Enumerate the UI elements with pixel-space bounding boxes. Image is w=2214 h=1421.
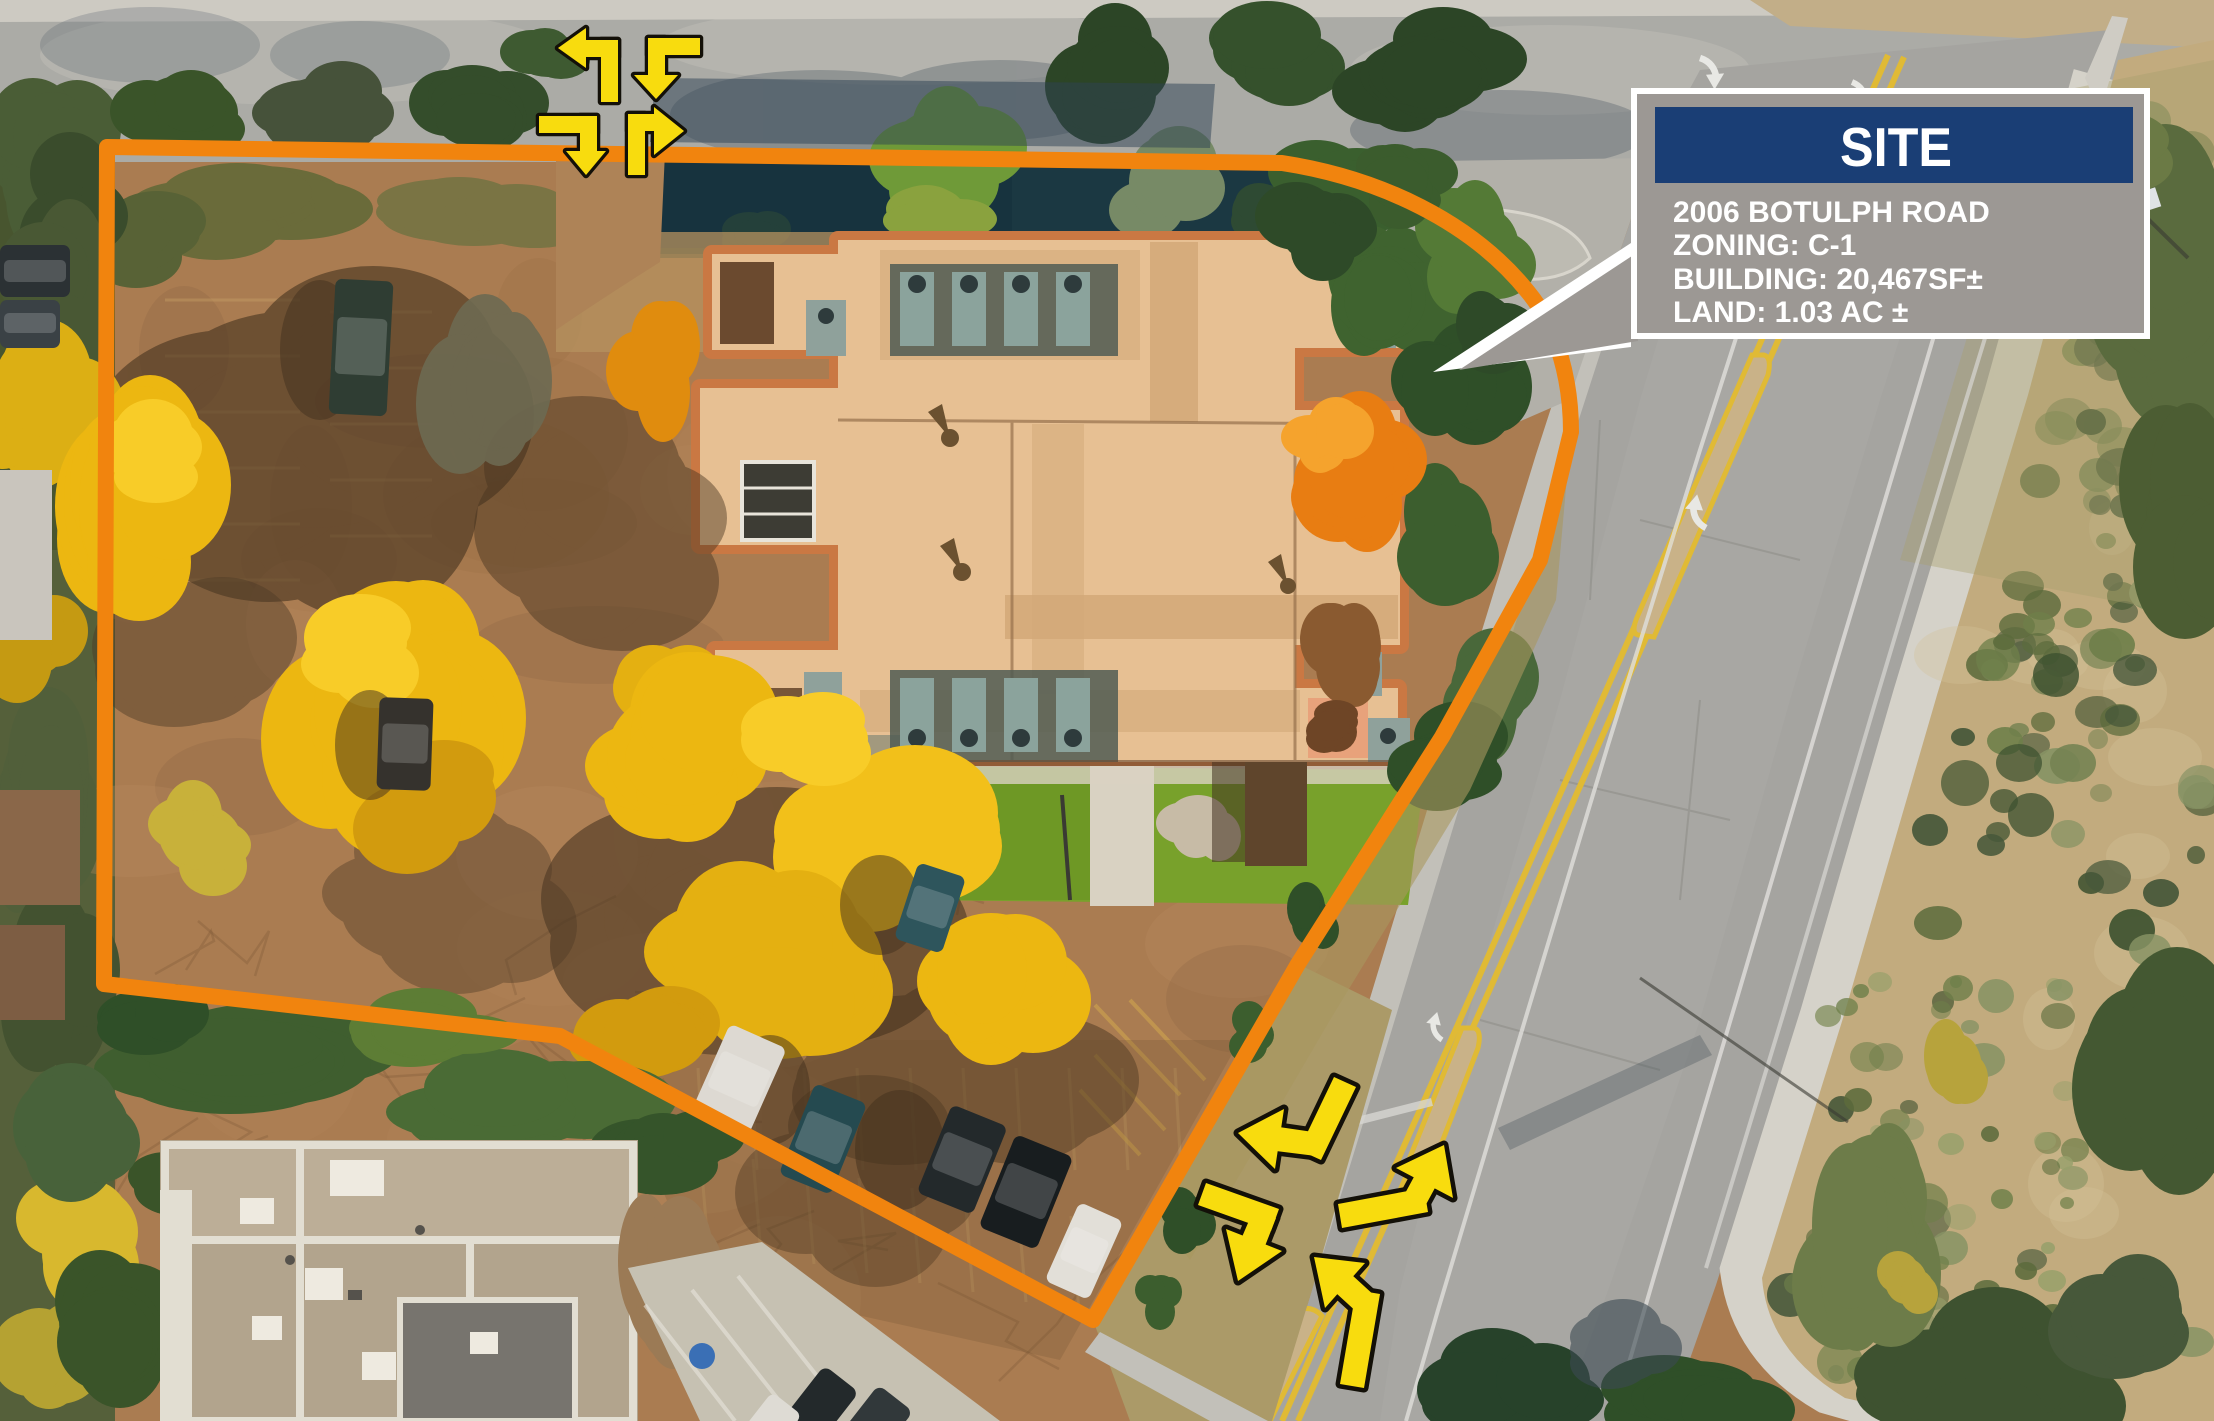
svg-text:LAND: 1.03 AC ±: LAND: 1.03 AC ± xyxy=(1673,296,1908,329)
svg-text:ZONING: C-1: ZONING: C-1 xyxy=(1673,229,1856,262)
svg-text:2006 BOTULPH ROAD: 2006 BOTULPH ROAD xyxy=(1673,196,1990,229)
svg-text:BUILDING: 20,467SF±: BUILDING: 20,467SF± xyxy=(1673,263,1983,296)
svg-text:SITE: SITE xyxy=(1840,116,1952,178)
